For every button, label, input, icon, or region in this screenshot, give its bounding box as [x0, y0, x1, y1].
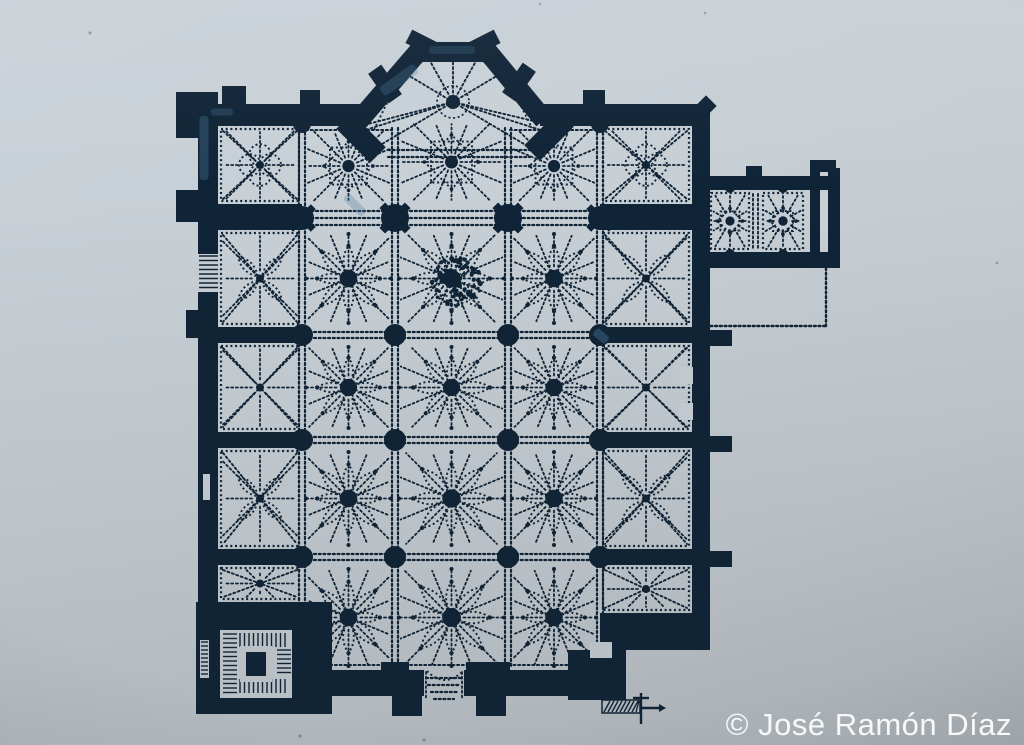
- photo-of-floor-plan-sign: © José Ramón Díaz: [0, 0, 1024, 745]
- walls-layer: [176, 30, 840, 716]
- watermark-credit: © José Ramón Díaz: [726, 707, 1012, 743]
- cathedral-floor-plan: [0, 0, 1024, 745]
